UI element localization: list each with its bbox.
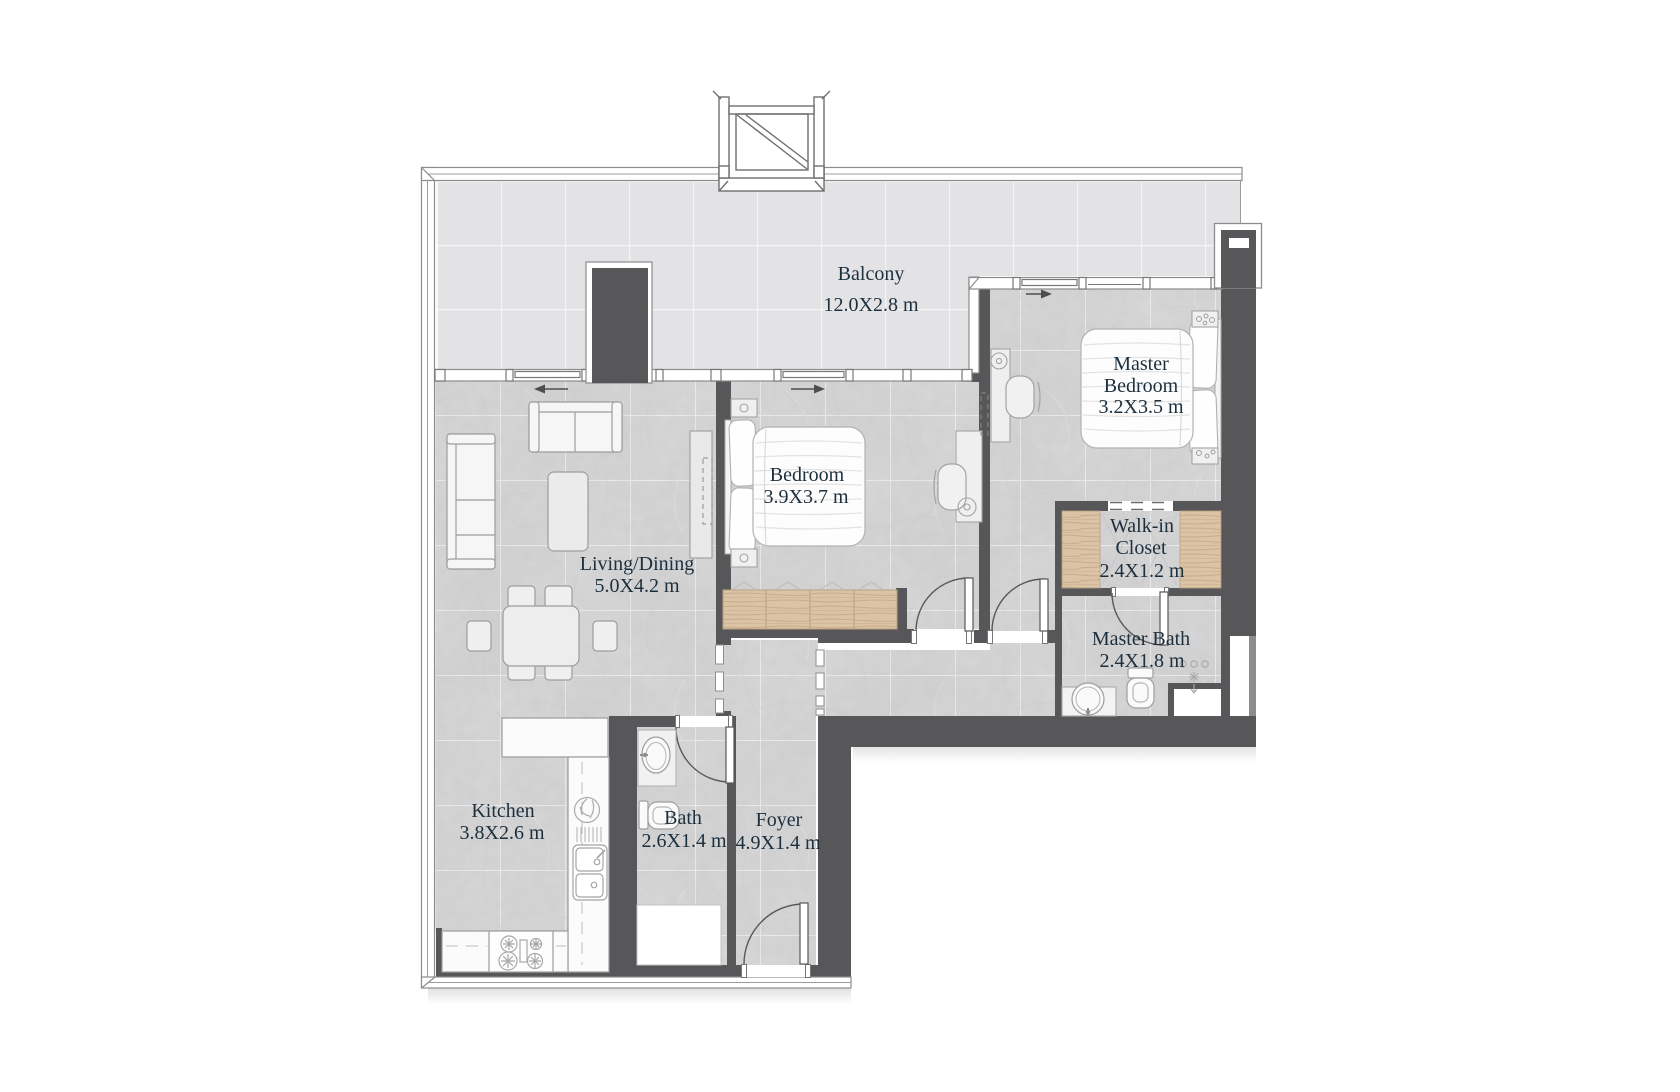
svg-text:5.0X4.2 m: 5.0X4.2 m: [595, 575, 680, 597]
svg-text:3.2X3.5 m: 3.2X3.5 m: [1099, 396, 1184, 418]
svg-text:Living/Dining: Living/Dining: [580, 553, 694, 575]
svg-text:Foyer: Foyer: [756, 809, 803, 831]
svg-text:Master: Master: [1113, 353, 1169, 375]
svg-text:Closet: Closet: [1115, 537, 1167, 559]
svg-text:Master Bath: Master Bath: [1092, 628, 1190, 650]
svg-text:Bath: Bath: [664, 807, 702, 829]
svg-text:2.6X1.4 m: 2.6X1.4 m: [642, 830, 727, 852]
svg-text:4.9X1.4 m: 4.9X1.4 m: [736, 832, 821, 854]
svg-text:3.8X2.6 m: 3.8X2.6 m: [460, 822, 545, 844]
svg-text:Bedroom: Bedroom: [1104, 375, 1179, 397]
svg-text:Balcony: Balcony: [838, 263, 905, 285]
svg-text:3.9X3.7 m: 3.9X3.7 m: [764, 486, 849, 508]
svg-text:12.0X2.8 m: 12.0X2.8 m: [824, 294, 919, 316]
svg-text:2.4X1.8 m: 2.4X1.8 m: [1100, 650, 1185, 672]
svg-text:Walk-in: Walk-in: [1110, 515, 1174, 537]
svg-text:2.4X1.2 m: 2.4X1.2 m: [1100, 560, 1185, 582]
svg-text:Kitchen: Kitchen: [471, 800, 534, 822]
svg-text:Bedroom: Bedroom: [770, 464, 845, 486]
